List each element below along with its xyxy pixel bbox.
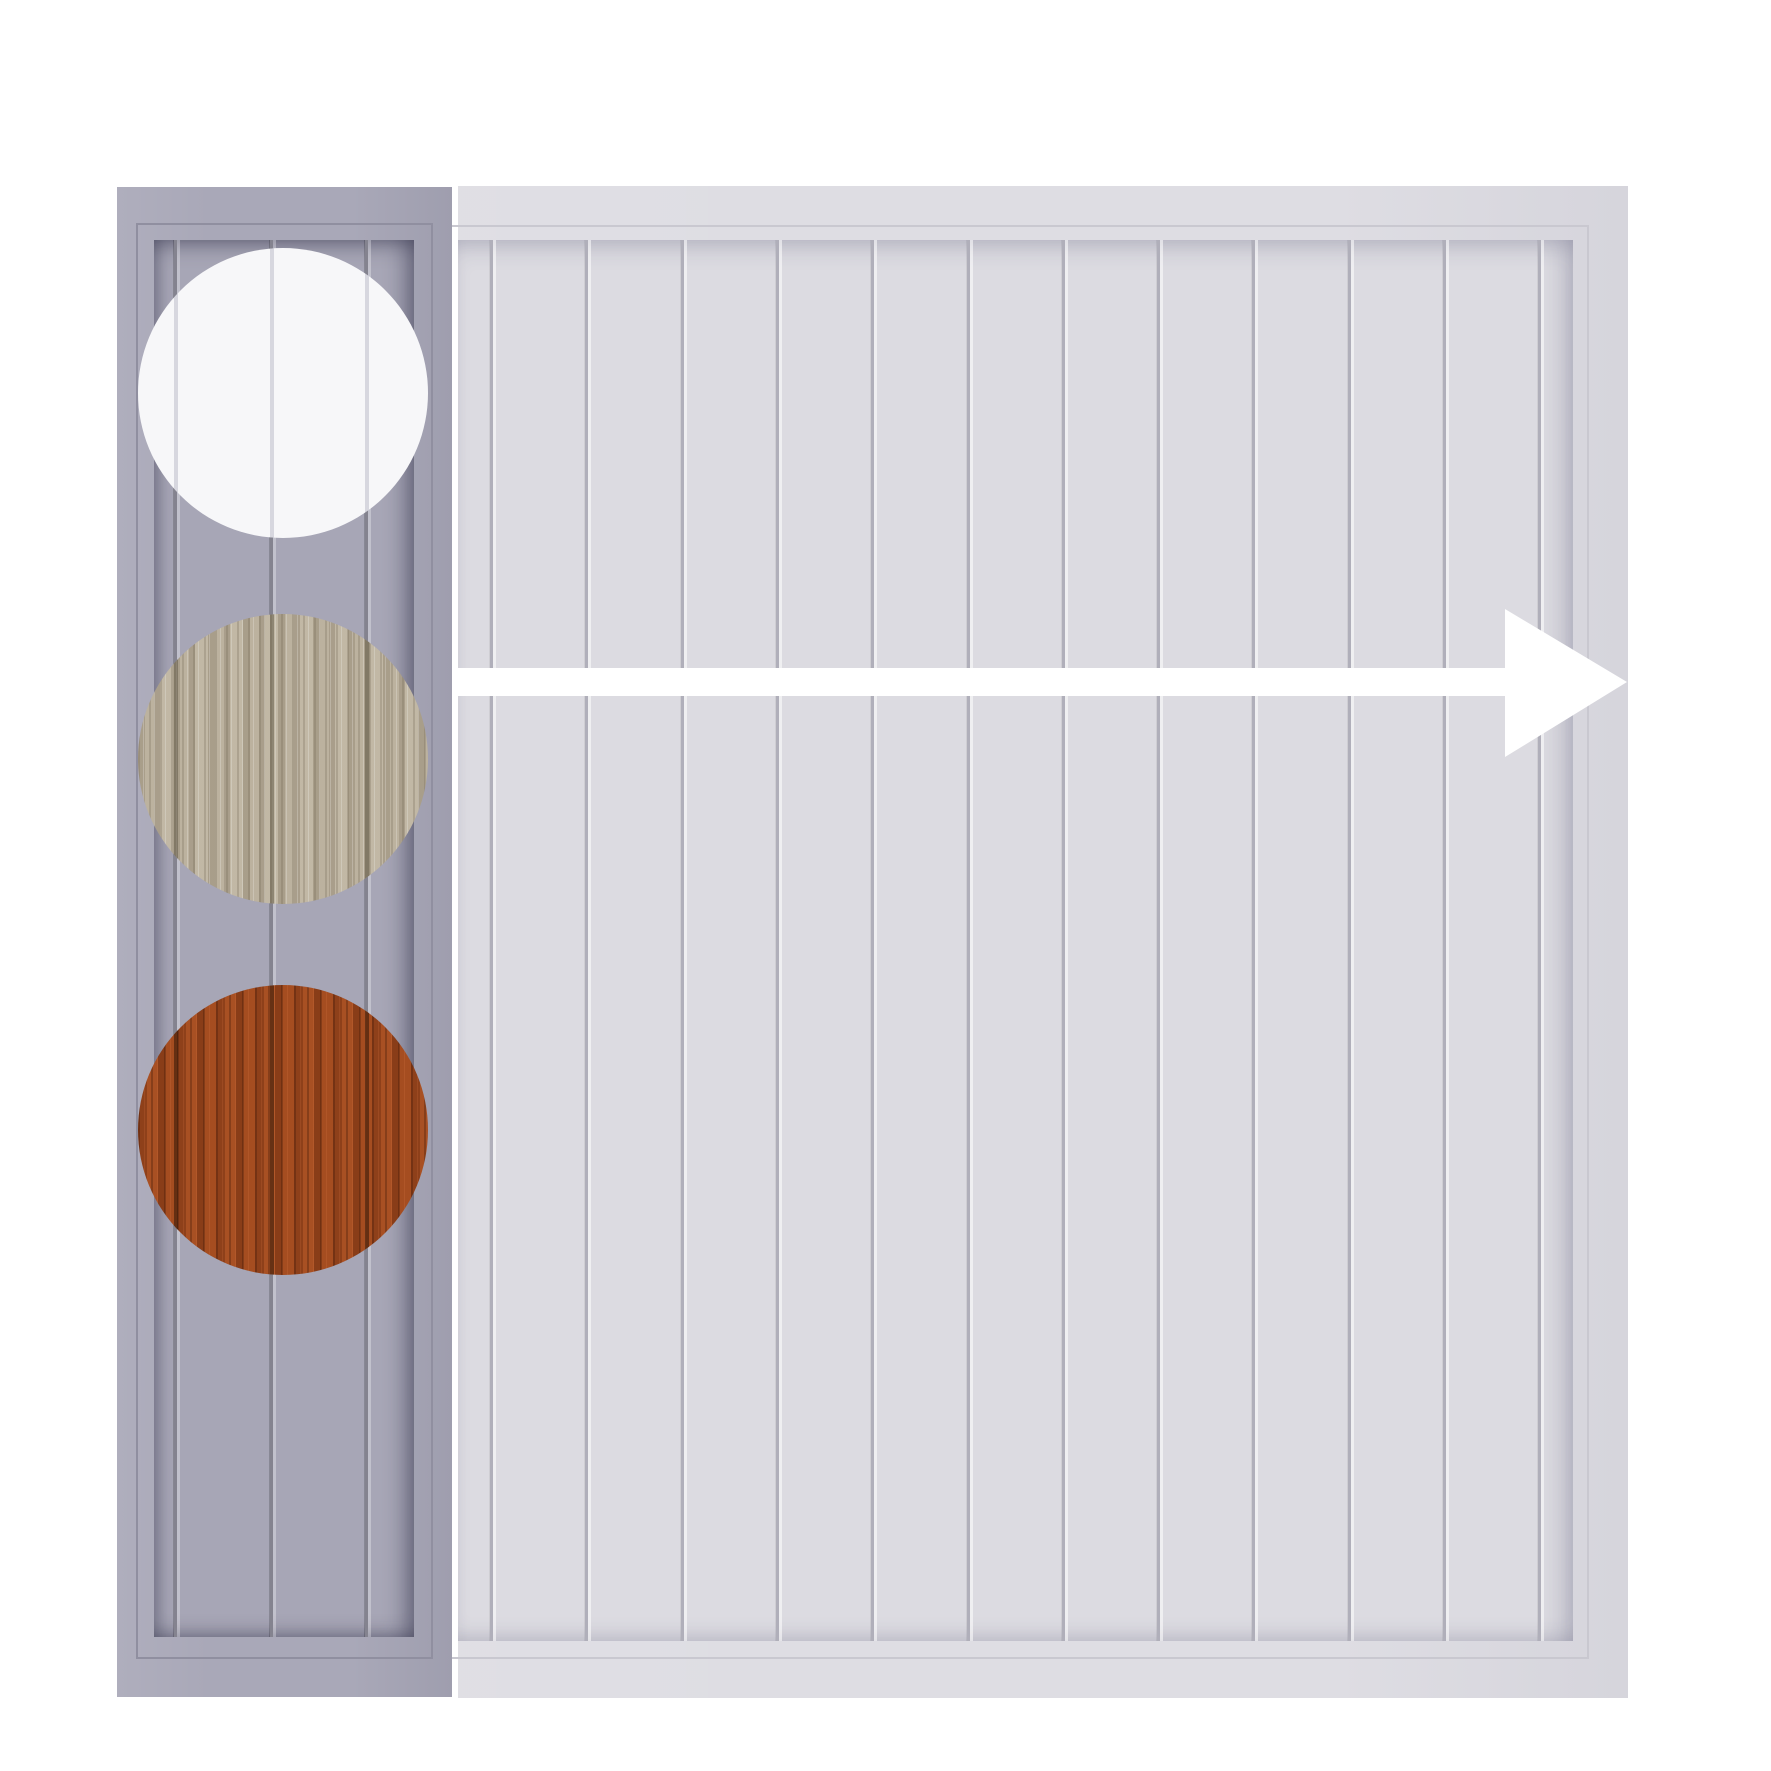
board-groove	[871, 240, 874, 1641]
right-arrow-icon	[450, 600, 1630, 765]
board-groove	[174, 614, 178, 904]
swatch-white[interactable]	[138, 248, 428, 538]
swatch-panel	[117, 187, 452, 1697]
board-groove	[365, 985, 369, 1275]
board-groove	[1157, 240, 1160, 1641]
board-groove	[174, 985, 178, 1275]
board-groove	[1062, 240, 1065, 1641]
swatch-cherry[interactable]	[138, 985, 428, 1275]
board-groove	[967, 240, 970, 1641]
board-groove	[776, 240, 779, 1641]
board-groove	[1443, 240, 1446, 1641]
swatch-driftwood[interactable]	[138, 614, 428, 904]
board-groove	[365, 614, 369, 904]
board-groove	[681, 240, 684, 1641]
board-groove	[270, 614, 274, 904]
board-groove	[1348, 240, 1351, 1641]
board-groove	[1538, 240, 1541, 1641]
fence-finish-options-graphic	[0, 0, 1771, 1771]
board-groove	[174, 248, 178, 538]
board-groove	[270, 985, 274, 1275]
board-groove	[490, 240, 493, 1641]
board-groove	[585, 240, 588, 1641]
preview-panel	[458, 186, 1628, 1698]
preview-panel-boards	[458, 240, 1573, 1641]
board-groove	[1252, 240, 1255, 1641]
board-groove	[365, 248, 369, 538]
board-groove	[270, 248, 274, 538]
